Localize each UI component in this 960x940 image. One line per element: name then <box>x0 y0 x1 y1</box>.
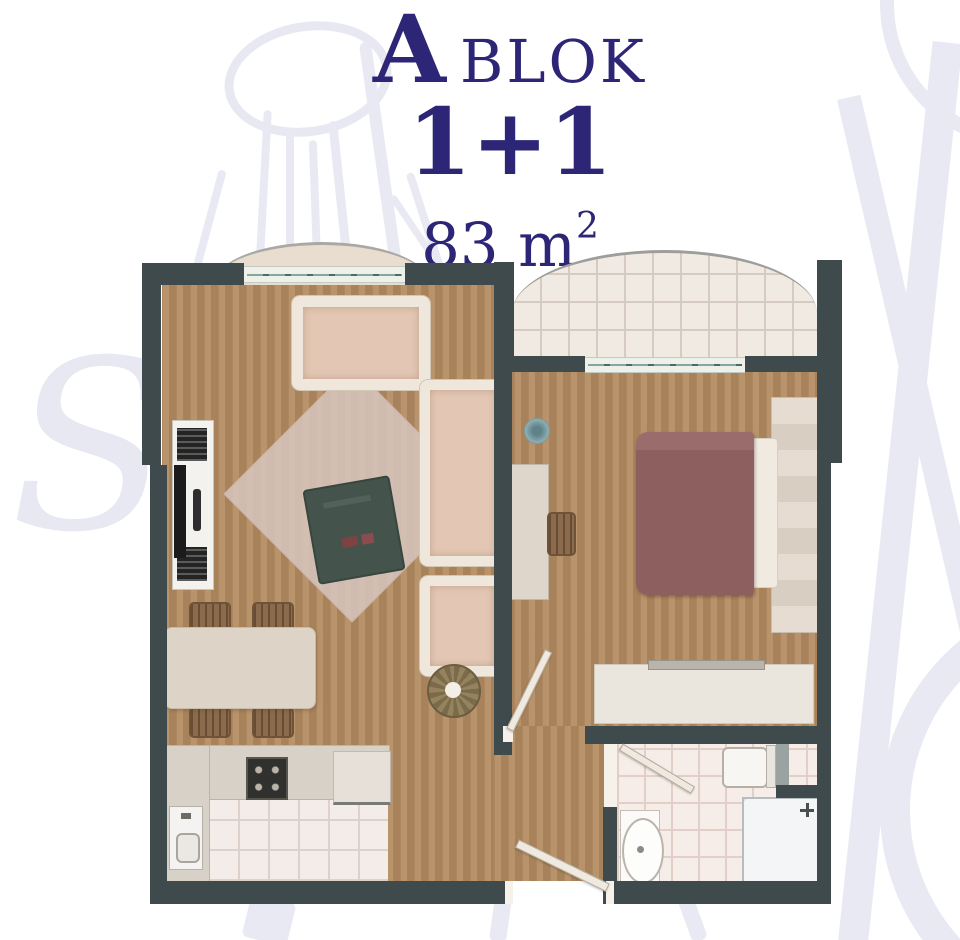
dining-chair <box>252 707 294 738</box>
bed-mattress <box>636 432 754 595</box>
wall-left-lower <box>150 465 167 904</box>
wall-right-lower <box>817 463 831 904</box>
door-jamb <box>604 744 617 807</box>
shower-head-icon <box>800 803 814 817</box>
wall-top-mid <box>405 263 501 285</box>
wall-bathroom-inner <box>776 785 830 798</box>
tv-unit <box>172 420 214 590</box>
pouf-center <box>445 682 461 698</box>
wall-bottom-right <box>606 881 831 904</box>
sink-bowl <box>176 833 200 863</box>
window-bedroom <box>585 357 745 373</box>
window-living <box>244 266 405 283</box>
tv-screen <box>174 465 186 558</box>
coffee-table-decor <box>361 533 375 545</box>
kitchen-sink <box>169 806 203 870</box>
fridge <box>333 751 391 805</box>
coffee-table <box>302 475 405 585</box>
armchair <box>420 576 504 676</box>
speaker-icon <box>177 428 207 461</box>
wall-bottom-left <box>150 881 512 904</box>
bed-pillows <box>750 438 778 588</box>
coffee-table-decor <box>341 536 358 549</box>
bed <box>636 397 817 631</box>
wall-right-upper <box>817 260 842 463</box>
shower-cross-bar <box>806 803 809 817</box>
decor-dot <box>524 418 550 444</box>
faucet-icon <box>181 813 191 819</box>
dining-chair <box>189 707 231 738</box>
dresser <box>594 664 814 724</box>
bed-headboard <box>771 397 819 633</box>
floor-plan-page: S TOWERS ABLOK 1+1 83 m2 <box>0 0 960 940</box>
tv-remote <box>193 489 201 531</box>
shower <box>742 797 822 891</box>
bedroom-balcony <box>512 250 817 359</box>
stove <box>246 757 288 800</box>
kitchen-tiles <box>208 797 388 881</box>
faucet-dot-icon <box>637 846 644 853</box>
wall-bedroom-top-right <box>745 356 817 372</box>
door-jamb <box>505 881 513 904</box>
duct <box>776 744 789 786</box>
wall-bedroom-bath <box>585 726 831 744</box>
pouf <box>427 664 481 718</box>
toilet-tank <box>766 745 776 788</box>
hall-stool <box>547 512 576 556</box>
dining-table <box>164 627 316 709</box>
wall-left-upper <box>142 263 161 465</box>
toilet <box>722 747 768 788</box>
sofa <box>292 296 430 390</box>
floor-plan <box>0 0 960 940</box>
hall-wardrobe <box>510 464 549 600</box>
dresser-tv <box>648 660 765 670</box>
wall-bedroom-top-left <box>512 356 585 372</box>
coffee-table-decor <box>323 495 371 509</box>
